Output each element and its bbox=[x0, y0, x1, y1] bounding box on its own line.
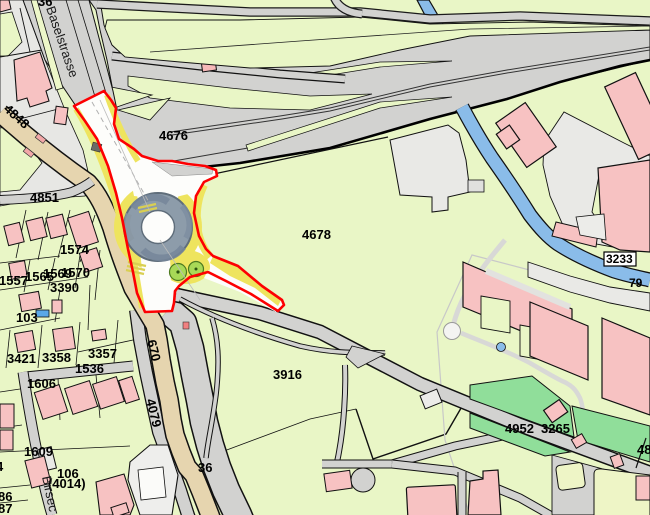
svg-text:1536: 1536 bbox=[75, 361, 104, 376]
svg-text:87: 87 bbox=[0, 501, 12, 515]
svg-text:3233: 3233 bbox=[606, 252, 633, 266]
svg-text:3916: 3916 bbox=[273, 367, 302, 382]
svg-text:4851: 4851 bbox=[30, 190, 59, 205]
svg-text:1574: 1574 bbox=[60, 242, 90, 257]
svg-text:79: 79 bbox=[629, 276, 643, 290]
svg-text:4952: 4952 bbox=[505, 421, 534, 436]
svg-text:1557: 1557 bbox=[0, 273, 28, 288]
svg-text:36: 36 bbox=[198, 460, 212, 475]
svg-text:3390: 3390 bbox=[50, 280, 79, 295]
svg-text:3357: 3357 bbox=[88, 346, 117, 361]
svg-text:3421: 3421 bbox=[7, 351, 36, 366]
svg-text:3358: 3358 bbox=[42, 350, 71, 365]
svg-text:1606: 1606 bbox=[27, 376, 56, 391]
svg-text:103: 103 bbox=[16, 310, 38, 325]
svg-text:1570: 1570 bbox=[61, 265, 90, 280]
svg-text:1609: 1609 bbox=[24, 444, 53, 459]
svg-text:4678: 4678 bbox=[302, 227, 331, 242]
svg-text:3265: 3265 bbox=[541, 421, 570, 436]
svg-text:48: 48 bbox=[637, 442, 650, 457]
svg-text:4676: 4676 bbox=[159, 128, 188, 143]
